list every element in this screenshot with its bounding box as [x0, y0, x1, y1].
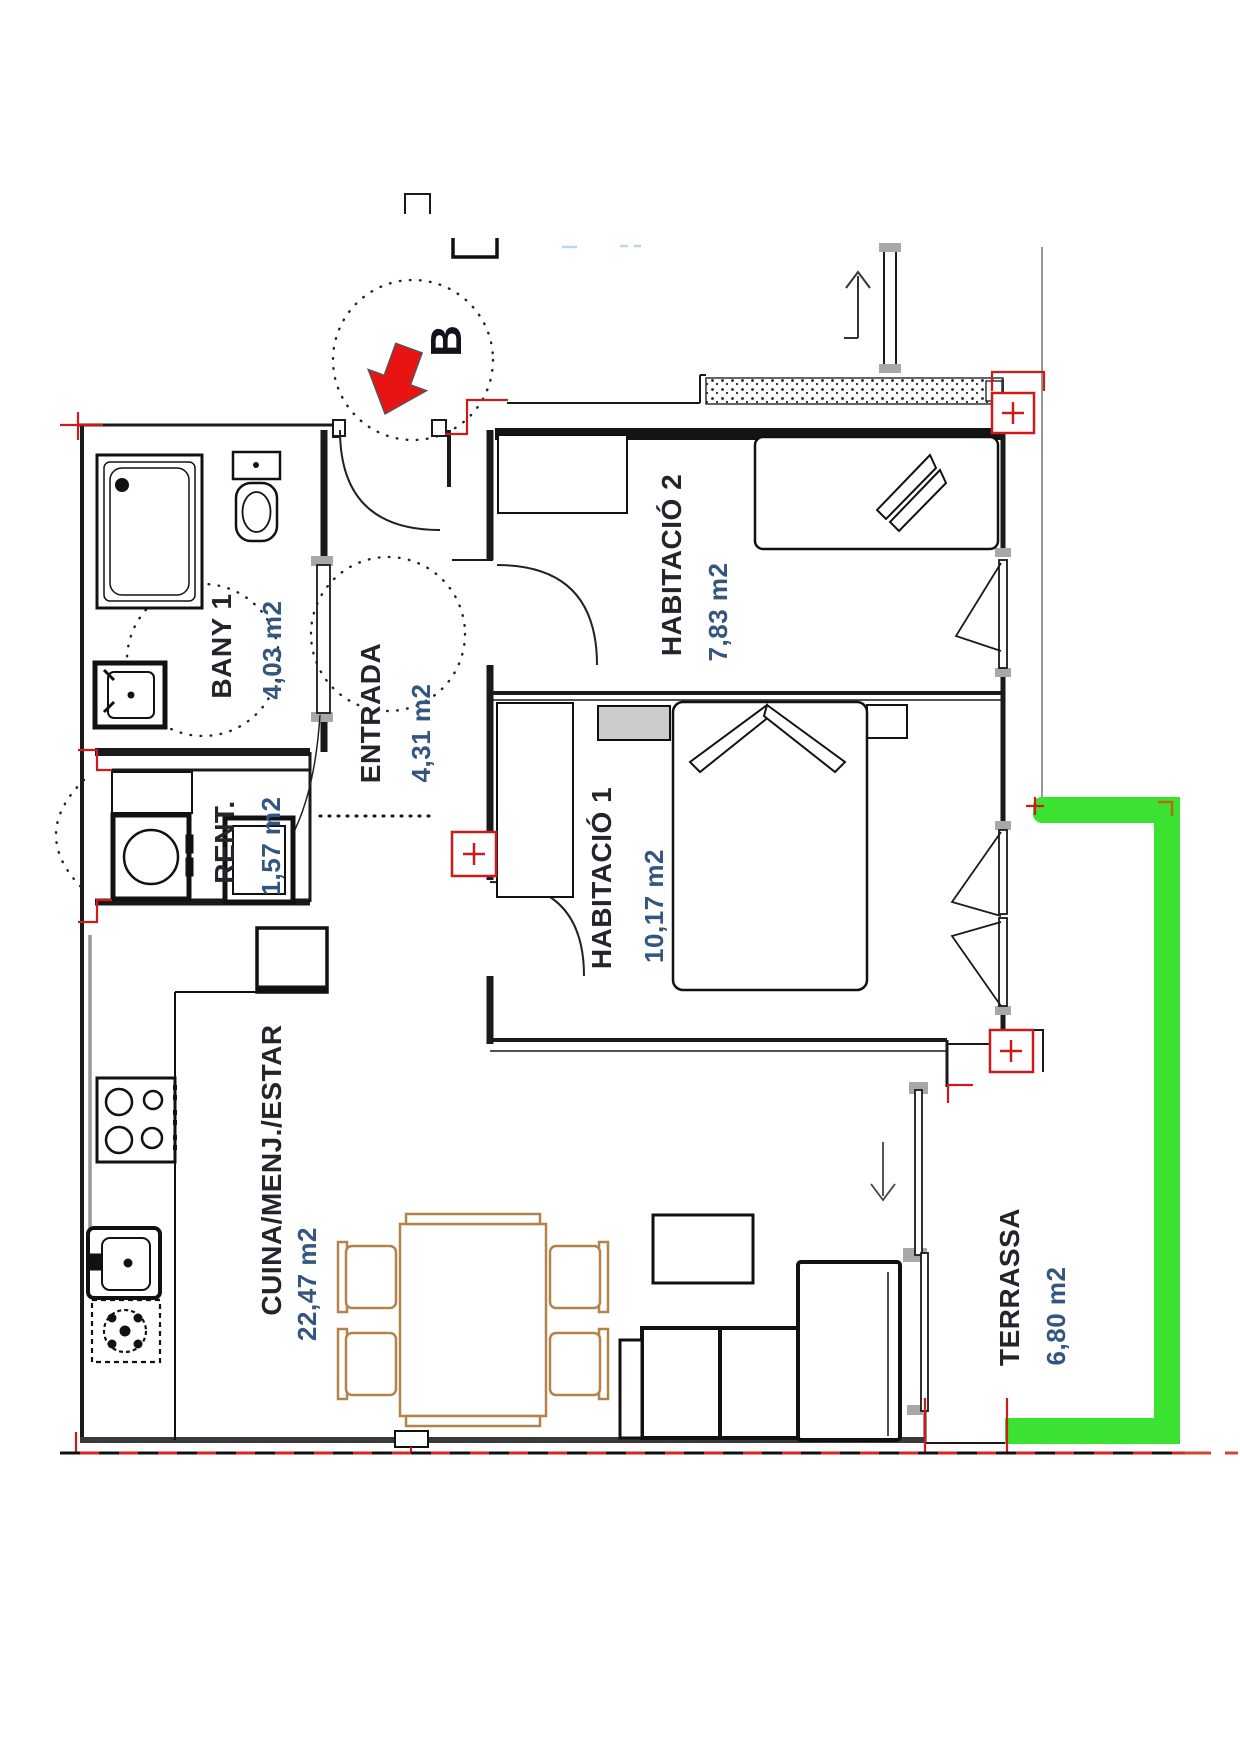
room-area-entrada: 4,31 m2 [408, 684, 434, 783]
tv-table [653, 1215, 753, 1283]
top-bracket [453, 238, 497, 257]
dining-table [400, 1214, 546, 1426]
window-hab1 [952, 830, 1007, 1006]
nightstand-left [598, 706, 670, 740]
kitchen-sink [88, 1228, 160, 1298]
nightstand-right [867, 705, 907, 738]
room-area-bany: 4,03 m2 [259, 601, 285, 700]
unit-letter-label: B [425, 325, 469, 357]
room-label-terrassa: TERRASSA [996, 1208, 1024, 1366]
faint-marks [562, 246, 641, 247]
room-label-habitacio-1: HABITACIÓ 1 [588, 787, 616, 969]
wardrobe-hab2 [498, 435, 627, 513]
wardrobe-hab1 [497, 703, 573, 897]
washbasin [95, 663, 165, 727]
room-area-rent: 1,57 m2 [258, 797, 284, 896]
bed-hab2 [755, 437, 998, 549]
floor-plan: BANY 1 4,03 m2 RENT. 1,57 m2 ENTRADA 4,3… [0, 0, 1240, 1755]
room-label-bany: BANY 1 [208, 593, 236, 698]
toilet [233, 452, 280, 541]
door-slide-arrow-icon [871, 1142, 895, 1200]
washing-machine [113, 815, 193, 899]
terrace-railing [1005, 797, 1180, 1444]
bathtub [97, 455, 202, 608]
bed-hab1 [673, 702, 867, 990]
room-area-cuina: 22,47 m2 [294, 1227, 320, 1341]
room-label-rent: RENT. [211, 800, 239, 883]
stove [97, 1078, 175, 1162]
sofa [620, 1262, 900, 1440]
room-label-entrada: ENTRADA [357, 643, 385, 783]
kitchen-counter [175, 992, 257, 1440]
laundry-shelf [112, 772, 192, 813]
room-area-terrassa: 6,80 m2 [1043, 1267, 1069, 1366]
room-area-habitacio-1: 10,17 m2 [641, 849, 667, 963]
fridge [257, 928, 327, 992]
boiler [92, 1300, 160, 1362]
window-hab2 [956, 560, 1007, 668]
window-band [706, 378, 1003, 404]
room-area-habitacio-2: 7,83 m2 [705, 563, 731, 662]
floor-plan-drawing [0, 0, 1240, 1755]
room-label-cuina: CUINA/MENJ./ESTAR [258, 1024, 286, 1315]
facade-arrow-icon [844, 272, 870, 338]
room-label-habitacio-2: HABITACIÓ 2 [658, 474, 686, 656]
